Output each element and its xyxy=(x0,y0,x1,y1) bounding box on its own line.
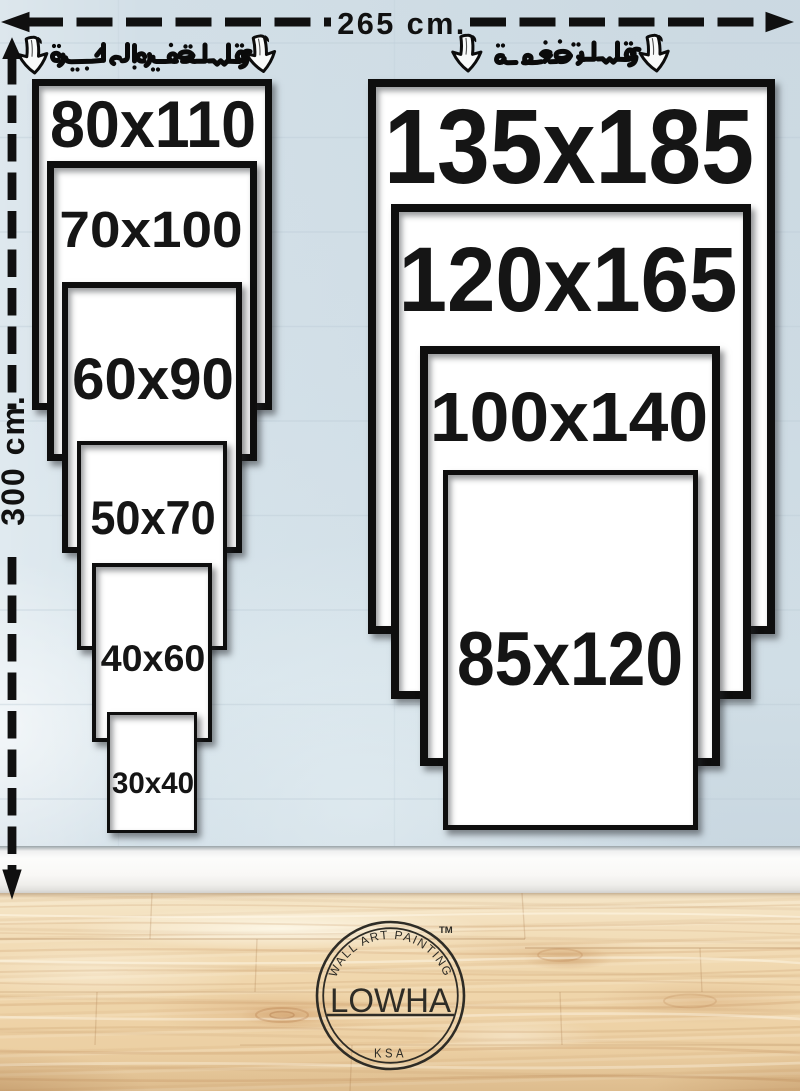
svg-text:WALL ART PAINTING: WALL ART PAINTING xyxy=(326,928,455,979)
svg-text:KSA: KSA xyxy=(374,1046,407,1061)
svg-text:TM: TM xyxy=(439,925,453,936)
